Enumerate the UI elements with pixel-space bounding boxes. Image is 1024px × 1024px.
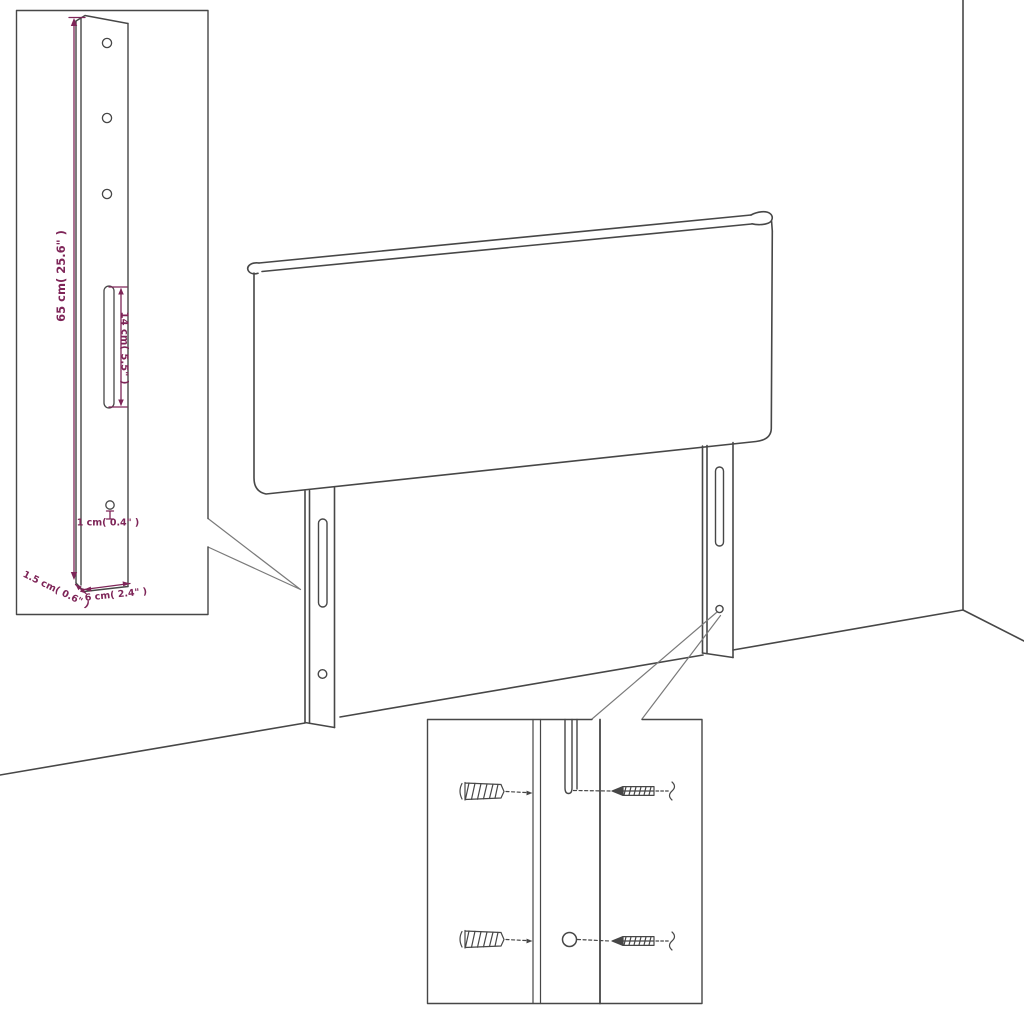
inset-leg-slot bbox=[104, 286, 114, 408]
dim-label-leg-height: 65 cm( 25.6" ) bbox=[54, 230, 68, 322]
floor-line-left bbox=[0, 610, 963, 775]
inset-leg-side-face bbox=[76, 19, 81, 586]
dim-label-hole-diameter: 1 cm( 0.4" ) bbox=[77, 518, 140, 529]
screw-top-break-squiggle bbox=[670, 782, 675, 800]
inset-leg-small-hole bbox=[106, 501, 114, 509]
left-leg-bottom-edge bbox=[305, 723, 335, 728]
headboard-panel bbox=[248, 212, 773, 494]
right-leg-hole bbox=[716, 605, 723, 612]
wall-plug-top-arrow bbox=[527, 791, 533, 796]
left-leg bbox=[305, 488, 335, 728]
wall-plug-top-icon bbox=[460, 783, 527, 801]
screw-bottom-break-squiggle bbox=[670, 932, 675, 950]
inset-mount-hole bbox=[563, 933, 577, 947]
panel-outline bbox=[254, 231, 772, 494]
floor-line-right bbox=[963, 610, 1024, 641]
detail-inset-mounting bbox=[428, 720, 703, 1004]
panel-top-edge-inner bbox=[262, 224, 752, 272]
screw-bottom-icon bbox=[578, 932, 675, 950]
panel-top-left-curl bbox=[248, 263, 259, 274]
right-callout-leader-lines bbox=[592, 613, 721, 720]
room-corner bbox=[0, 0, 1024, 775]
right-leg-bottom-edge bbox=[703, 653, 734, 658]
diagram-stage: 65 cm( 25.6" ) 14 cm( 5.5" ) 1 cm( 0.4" … bbox=[0, 0, 1024, 1024]
panel-top-right-curl bbox=[751, 212, 772, 231]
inset-leg-hole-1 bbox=[102, 38, 111, 47]
inset-leg-hole-3 bbox=[102, 189, 111, 198]
inset-mount-slot bbox=[565, 720, 577, 794]
screw-top-icon bbox=[574, 782, 675, 800]
right-leg bbox=[703, 443, 734, 658]
wall-plug-bottom-arrow bbox=[527, 939, 533, 944]
dim-65-line bbox=[69, 18, 85, 579]
right-leg-slot bbox=[716, 467, 724, 546]
dim-label-slot-length: 14 cm( 5.5" ) bbox=[119, 312, 130, 385]
line-art bbox=[0, 0, 1024, 1024]
left-leg-hole bbox=[318, 670, 327, 679]
inset-leg-top-edge bbox=[76, 16, 128, 24]
inset-mount-leg-edges bbox=[533, 720, 541, 1004]
wall-plug-bottom-icon bbox=[460, 931, 527, 949]
panel-top-edge-outer bbox=[259, 215, 751, 263]
left-leg-slot bbox=[319, 519, 328, 607]
inset-leg-hole-2 bbox=[102, 113, 111, 122]
left-callout-leader-lines bbox=[208, 519, 301, 590]
